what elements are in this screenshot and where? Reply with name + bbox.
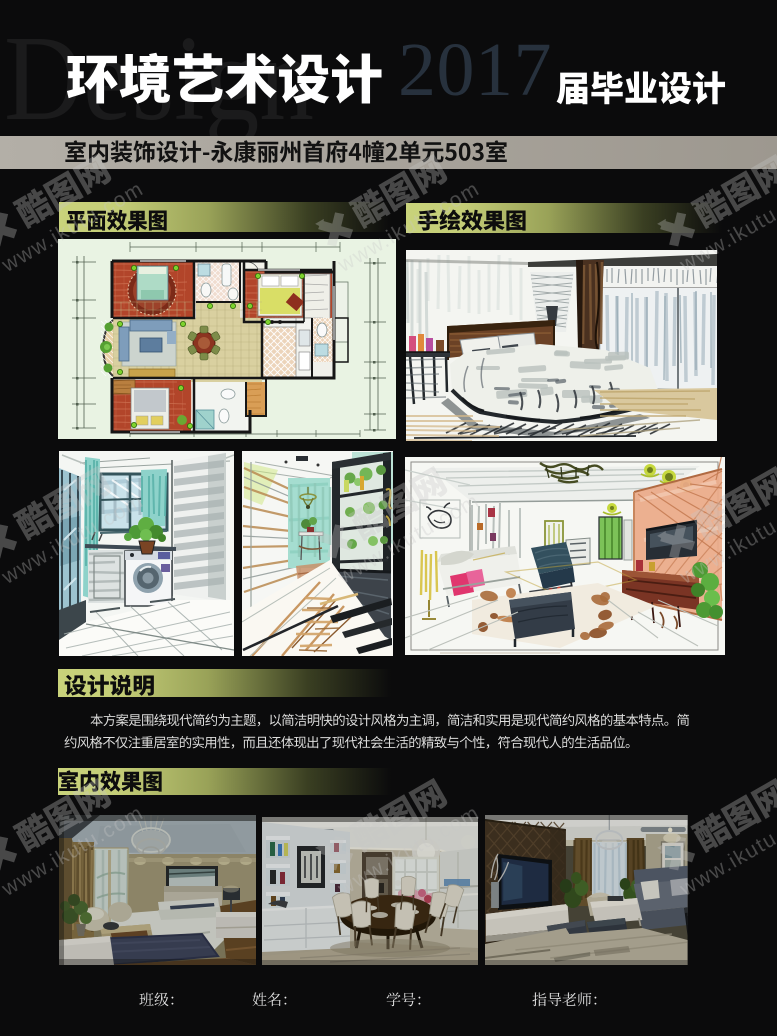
- svg-text:2017: 2017: [398, 28, 552, 112]
